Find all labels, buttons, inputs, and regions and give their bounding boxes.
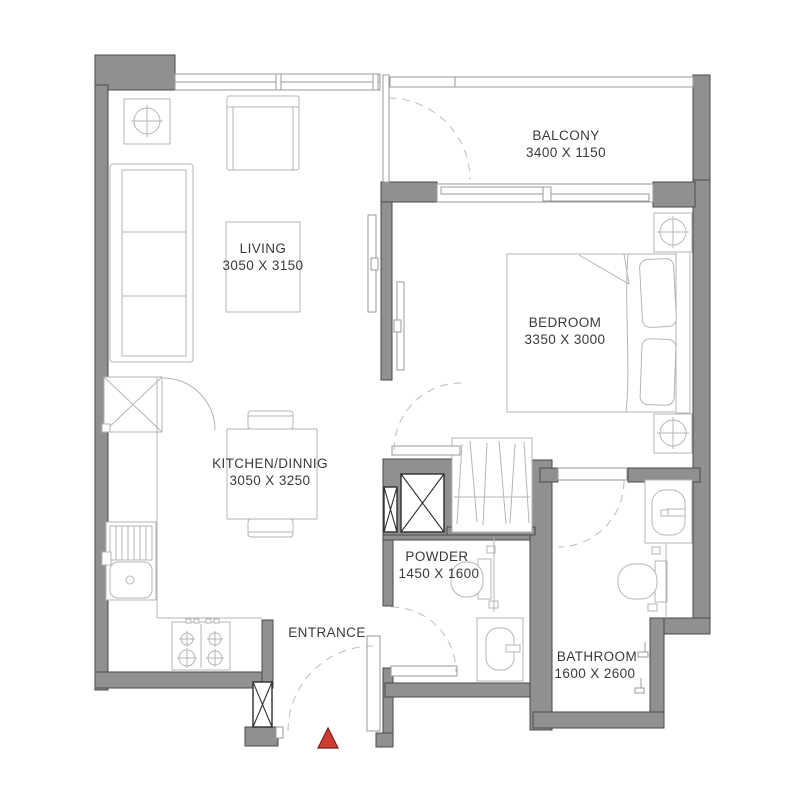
bathroom-dims: 1600 X 2600 <box>555 666 636 681</box>
bathroom-sink <box>645 480 692 543</box>
bedroom-dims: 3350 X 3000 <box>525 332 606 347</box>
balcony-label: BALCONY <box>532 128 599 143</box>
living-balcony-door-frame <box>383 75 389 182</box>
bathroom-door <box>558 468 627 547</box>
balcony-dims: 3400 X 1150 <box>526 145 606 160</box>
sofa <box>110 164 193 362</box>
bedroom-door <box>392 383 461 455</box>
floor-plan: BALCONY 3400 X 1150 LIVING 3050 X 3150 B… <box>0 0 800 800</box>
wardrobe-closet <box>452 438 532 532</box>
bathroom-label: BATHROOM <box>557 649 637 664</box>
entrance-label: ENTRANCE <box>288 625 365 640</box>
powder-door <box>391 607 457 676</box>
stove <box>172 619 230 670</box>
powder-sink <box>477 618 523 681</box>
balcony-sliding-door <box>437 184 653 202</box>
nightstand-top <box>654 213 692 252</box>
living-window <box>175 74 380 90</box>
armchair <box>227 96 299 170</box>
kitchen-sink <box>102 522 156 600</box>
balcony-door-swing <box>388 98 470 180</box>
powder-label: POWDER <box>405 549 468 564</box>
washing-machine <box>102 377 215 432</box>
living-label: LIVING <box>240 241 287 256</box>
entrance-marker-icon <box>318 728 338 748</box>
bathroom-toilet <box>618 543 667 618</box>
ceiling-unit-icon <box>124 99 170 144</box>
floor-plan-drawing: BALCONY 3400 X 1150 LIVING 3050 X 3150 B… <box>0 0 800 800</box>
bedroom-label: BEDROOM <box>529 315 602 330</box>
kitchen-dims: 3050 X 3250 <box>230 473 311 488</box>
entrance-door <box>288 636 380 731</box>
kitchen-label: KITCHEN/DINNIG <box>212 456 328 471</box>
powder-dims: 1450 X 1600 <box>399 566 480 581</box>
nightstand-bottom <box>654 414 692 453</box>
balcony-railing <box>390 77 693 87</box>
living-dims: 3050 X 3150 <box>223 258 304 273</box>
